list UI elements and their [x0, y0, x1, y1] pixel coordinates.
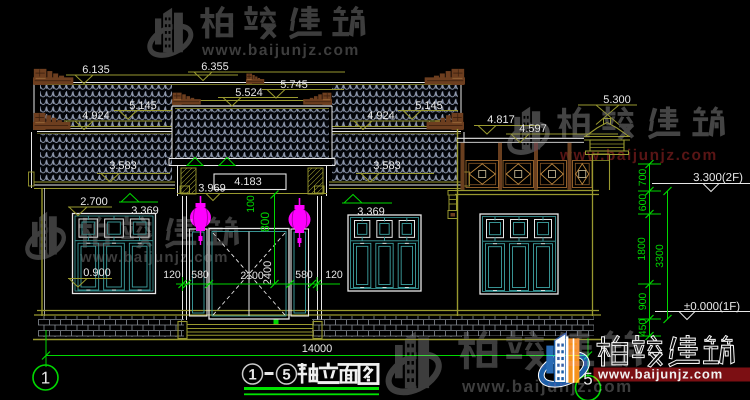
svg-text:800: 800 — [258, 212, 272, 232]
svg-text:3.969: 3.969 — [198, 183, 226, 195]
svg-text:0.900: 0.900 — [83, 267, 111, 279]
svg-text:4.817: 4.817 — [487, 114, 515, 126]
svg-text:6.355: 6.355 — [201, 61, 229, 73]
svg-text:900: 900 — [637, 293, 649, 311]
svg-text:4.924: 4.924 — [367, 110, 395, 122]
svg-text:580: 580 — [295, 269, 313, 281]
svg-text:4.924: 4.924 — [82, 110, 110, 122]
svg-text:5.524: 5.524 — [235, 87, 263, 99]
svg-text:3300: 3300 — [654, 244, 666, 268]
svg-text:100: 100 — [245, 195, 257, 213]
svg-text:3.300(2F): 3.300(2F) — [693, 172, 743, 184]
svg-text:www.baijunjz.com: www.baijunjz.com — [79, 249, 229, 266]
svg-text:1: 1 — [41, 369, 50, 388]
svg-text:2400: 2400 — [262, 261, 274, 285]
svg-text:14000: 14000 — [302, 343, 333, 355]
svg-text:5.300: 5.300 — [603, 94, 631, 106]
svg-text:3.369: 3.369 — [131, 205, 159, 217]
svg-text:580: 580 — [191, 269, 209, 281]
svg-text:1: 1 — [248, 367, 256, 384]
svg-text:5.745: 5.745 — [280, 79, 308, 91]
svg-text:3.369: 3.369 — [357, 206, 385, 218]
svg-text:2100: 2100 — [240, 270, 264, 282]
svg-text:6.135: 6.135 — [82, 64, 110, 76]
svg-text:1800: 1800 — [636, 237, 648, 261]
svg-text:3.583: 3.583 — [109, 160, 137, 172]
svg-text:5.145: 5.145 — [129, 100, 157, 112]
svg-text:2.700: 2.700 — [80, 196, 108, 208]
svg-text:3.583: 3.583 — [373, 160, 401, 172]
svg-text:120: 120 — [325, 269, 343, 281]
svg-text:www.baijunjz.com: www.baijunjz.com — [597, 367, 723, 382]
svg-text:5: 5 — [282, 367, 290, 384]
svg-text:www.baijunjz.com: www.baijunjz.com — [559, 147, 718, 164]
svg-text:4.183: 4.183 — [234, 176, 262, 188]
svg-text:600: 600 — [637, 194, 649, 212]
svg-text:700: 700 — [637, 169, 649, 187]
svg-text:5.145: 5.145 — [415, 100, 443, 112]
svg-text:www.baijunjz.com: www.baijunjz.com — [201, 42, 360, 59]
svg-text:120: 120 — [163, 269, 181, 281]
svg-text:450: 450 — [637, 319, 649, 337]
